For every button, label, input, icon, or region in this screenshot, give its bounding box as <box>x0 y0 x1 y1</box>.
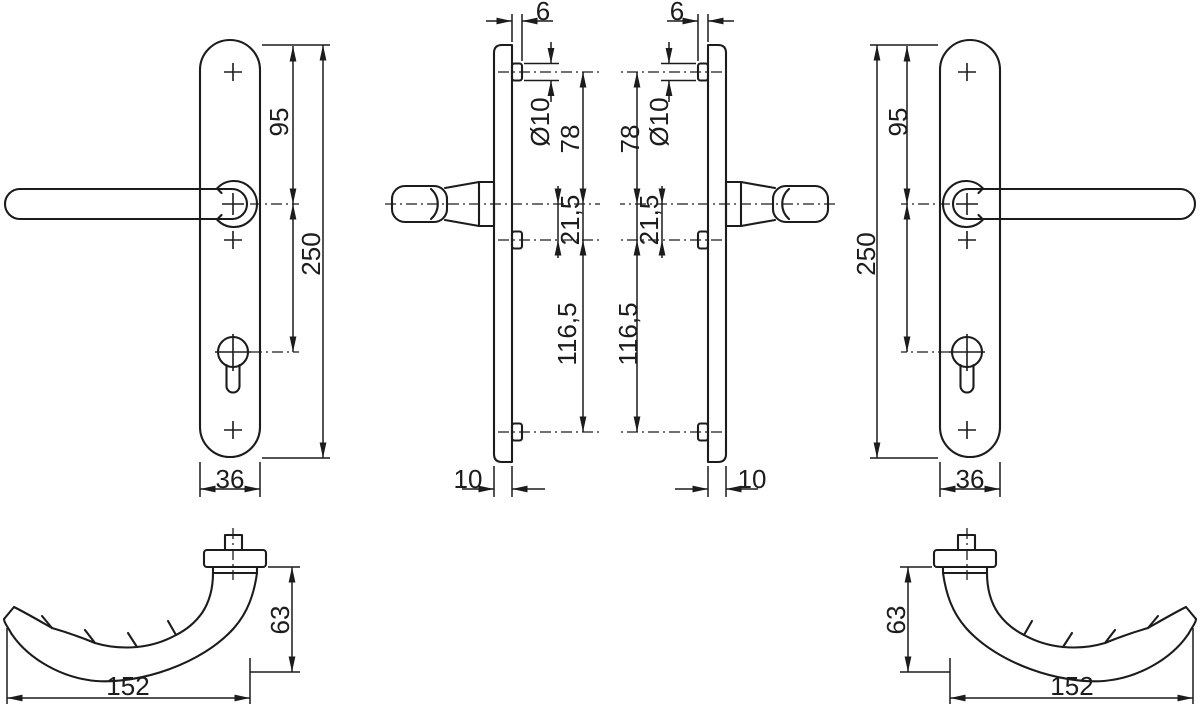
dim-label-152-bottom-right: 152 <box>1050 671 1093 701</box>
keyhole-cross <box>215 334 251 371</box>
dim-label-6-side-left: 6 <box>536 0 550 26</box>
backplate-outline <box>200 40 260 457</box>
arrowheads-6 <box>497 18 538 25</box>
dim-label-152-bottom-left: 152 <box>106 671 149 701</box>
bottom-view-right <box>900 528 1196 704</box>
dim-label-250-front-left: 250 <box>296 232 326 275</box>
dim-label-78-side-left: 78 <box>555 125 585 154</box>
screw-cross-bottom <box>224 421 242 439</box>
dim-label-95-front-right: 95 <box>883 108 913 137</box>
grip-inner-scalloped-edge <box>52 573 213 648</box>
backplate-profile <box>494 45 512 462</box>
dim-label-63-bottom-left: 63 <box>265 606 295 635</box>
dim-label-21-5-side-right: 21,5 <box>634 195 664 246</box>
lever-handle <box>5 189 247 219</box>
dim-label-d10-side-right: Ø10 <box>644 97 674 146</box>
screw-cross-top <box>224 63 242 81</box>
dim-label-d10-side-left: Ø10 <box>525 97 555 146</box>
dim-label-6-side-right: 6 <box>670 0 684 26</box>
grip-tip <box>4 607 52 628</box>
door-handle-dimension-drawing: 95 250 36 6 Ø10 78 21,5 116,5 10 6 Ø10 7… <box>0 0 1200 707</box>
front-view-right <box>870 40 1195 497</box>
side-view-left <box>385 14 600 497</box>
dim-label-21-5-side-left: 21,5 <box>555 195 585 246</box>
dim-label-78-side-right: 78 <box>615 125 645 154</box>
handle-center-cross <box>222 193 244 215</box>
screw-cross-middle <box>224 231 242 249</box>
dim-label-63-bottom-right: 63 <box>881 606 911 635</box>
dim-label-250-front-right: 250 <box>851 232 881 275</box>
handle-rose <box>204 550 266 567</box>
rose-step <box>213 567 257 573</box>
dim-label-36-front-right: 36 <box>956 464 985 494</box>
dim-label-95-front-left: 95 <box>264 108 294 137</box>
technical-drawing-page: 95 250 36 6 Ø10 78 21,5 116,5 10 6 Ø10 7… <box>0 0 1200 707</box>
dim-label-10-side-left: 10 <box>454 464 483 494</box>
dim-label-116-5-side-right: 116,5 <box>613 302 643 365</box>
dim-label-116-5-side-left: 116,5 <box>552 302 582 365</box>
grip-outer-edge <box>4 573 257 681</box>
dim-label-10-side-right: 10 <box>738 464 767 494</box>
bottom-view-left <box>4 528 300 704</box>
dim-label-36-front-left: 36 <box>216 464 245 494</box>
arrowheads-10 <box>479 486 528 493</box>
side-view-right <box>620 14 835 497</box>
